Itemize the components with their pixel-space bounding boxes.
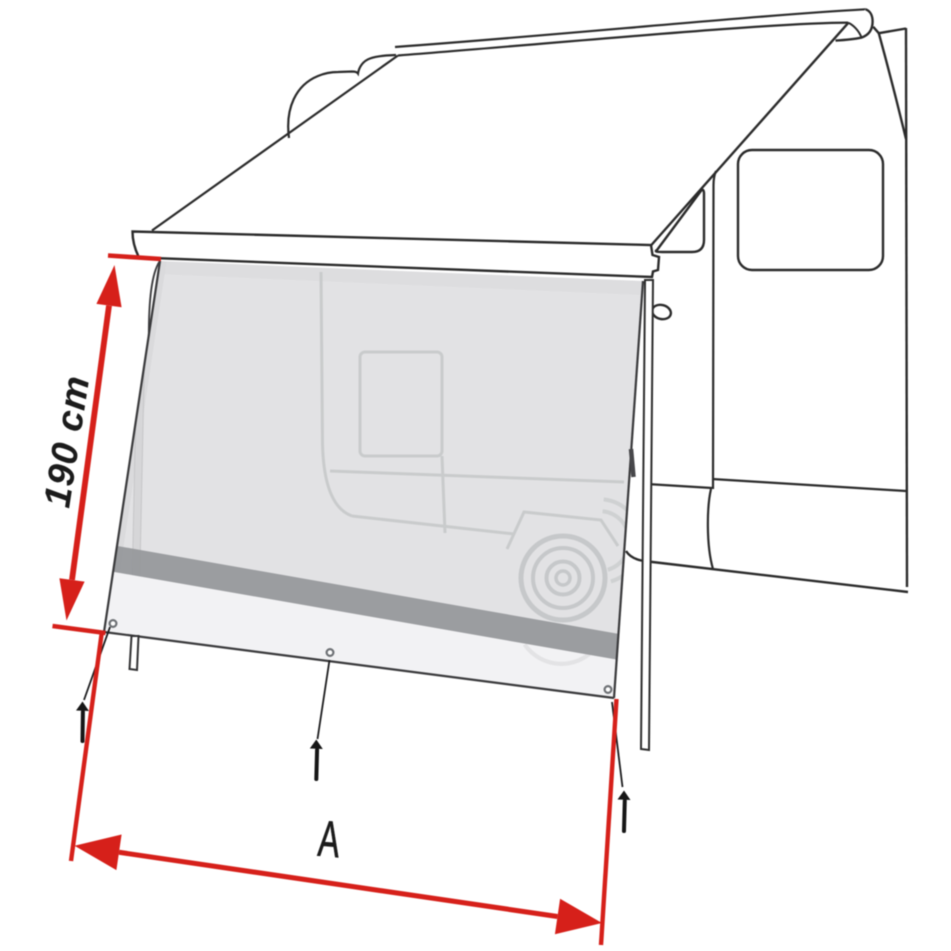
svg-text:A: A bbox=[316, 810, 343, 869]
